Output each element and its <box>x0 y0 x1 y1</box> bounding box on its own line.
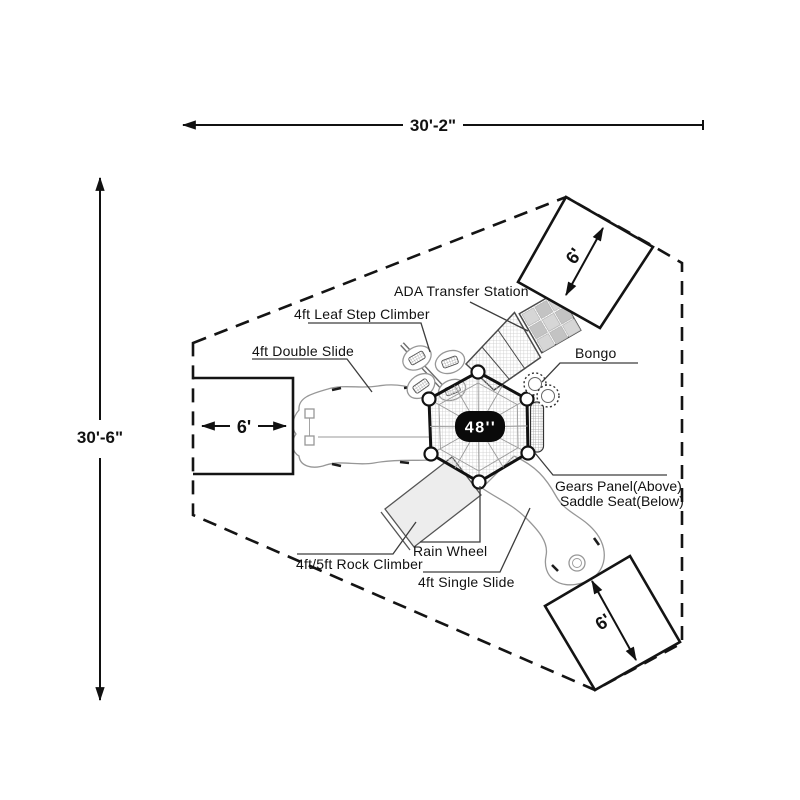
deck-size-label: 48'' <box>465 420 496 437</box>
rain-wheel-label: Rain Wheel <box>413 543 487 559</box>
plan-canvas: 48'' 6' 6' 6' 30'-2" 30'-6" ADA T <box>0 0 800 800</box>
ada-transfer-station-label: ADA Transfer Station <box>394 283 529 299</box>
saddle-seat-label: Saddle Seat(Below) <box>560 493 684 509</box>
double-slide-label: 4ft Double Slide <box>252 343 354 359</box>
overall-width-label: 30'-2" <box>410 116 456 135</box>
double-slide <box>292 385 430 467</box>
deck-size-badge: 48'' <box>455 411 505 442</box>
gears-panel-label: Gears Panel(Above) <box>555 478 682 494</box>
single-slide-label: 4ft Single Slide <box>418 574 515 590</box>
overall-height-label: 30'-6" <box>77 428 123 447</box>
gears-saddle-strip <box>531 402 544 452</box>
rock-climber-label: 4ft/5ft Rock Climber <box>296 556 423 572</box>
left-zone-label: 6' <box>237 417 251 437</box>
bongo-label: Bongo <box>575 345 616 361</box>
leaf-step-climber-label: 4ft Leaf Step Climber <box>294 306 430 322</box>
playground-plan-drawing: 48'' 6' 6' 6' 30'-2" 30'-6" ADA T <box>0 0 800 800</box>
